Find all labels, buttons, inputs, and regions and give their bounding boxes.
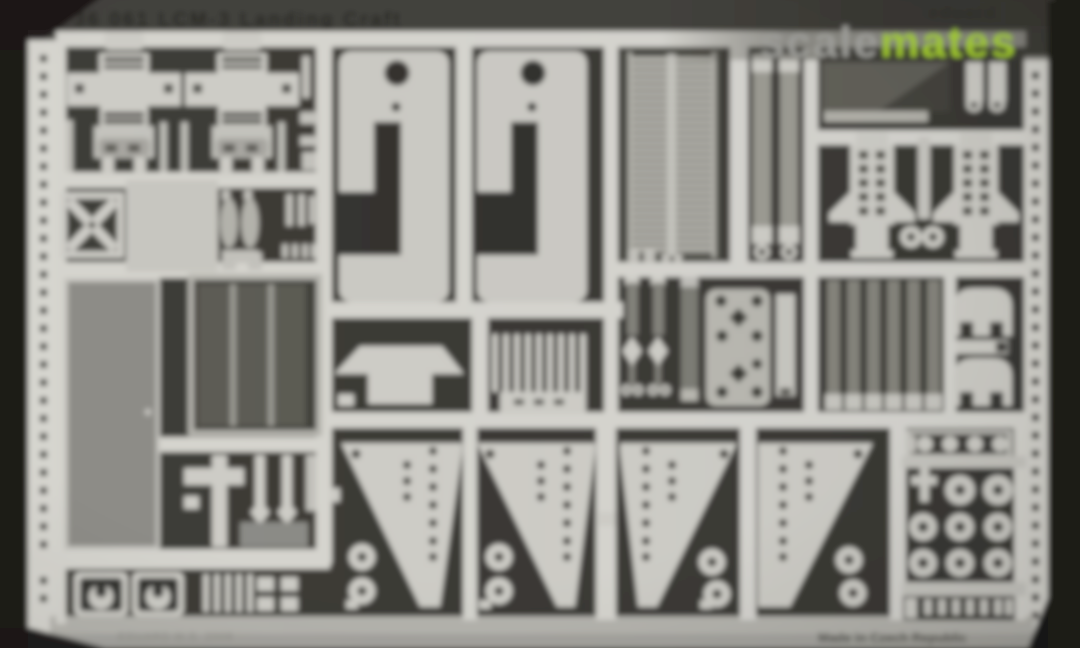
svg-text:scalemates: scalemates [760,18,1017,67]
